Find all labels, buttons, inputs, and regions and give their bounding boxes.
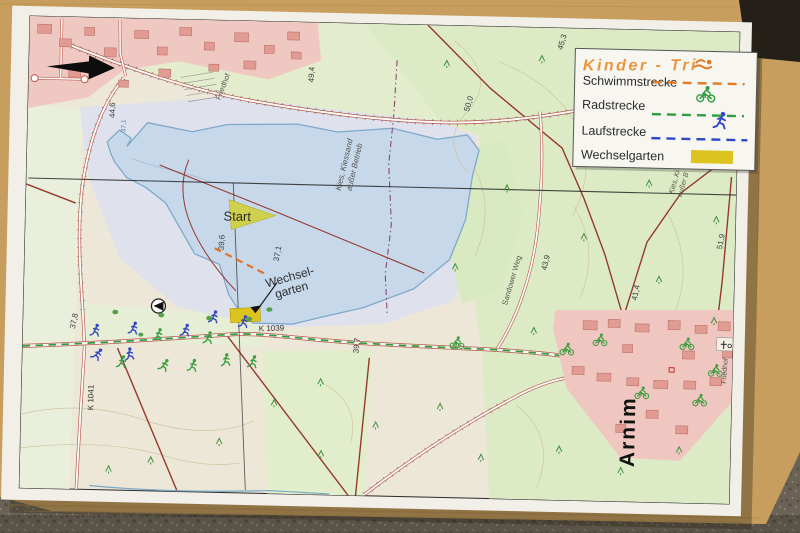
svg-text:37,1: 37,1 <box>120 119 127 132</box>
legend-swim-label: Schwimmstrecke <box>583 74 678 90</box>
town-name-label: Arnim <box>616 396 641 467</box>
road-label-k1039: K 1039 <box>259 324 285 334</box>
svg-text:44,6: 44,6 <box>108 102 117 118</box>
legend-transition-swatch <box>691 150 733 164</box>
turn-indicator-icon <box>151 299 165 313</box>
fields-south-center <box>259 347 372 495</box>
elevation-49-4: 49,4 <box>307 66 317 83</box>
photo-of-course-map: Start Wechsel- garten Arnim K 1039 K 104… <box>0 0 800 533</box>
svg-text:K 1041: K 1041 <box>86 384 96 410</box>
elevation-39-7: 39,7 <box>351 337 361 354</box>
legend-transition-label: Wechselgarten <box>581 148 664 164</box>
map-photo-canvas: Start Wechsel- garten Arnim K 1039 K 104… <box>0 0 800 533</box>
legend-title: Kinder - Tri <box>583 57 698 74</box>
svg-text:39,7: 39,7 <box>351 337 361 354</box>
elevation-37-1-nw: 37,1 <box>120 119 127 132</box>
legend-bike-label: Radstrecke <box>582 98 646 113</box>
svg-text:Arnim: Arnim <box>616 396 641 467</box>
road-label-k1041: K 1041 <box>86 384 96 410</box>
cul-de-sac <box>31 75 38 82</box>
elevation-44-6: 44,6 <box>108 102 117 118</box>
start-label: Start <box>223 208 251 224</box>
svg-text:49,4: 49,4 <box>307 66 317 83</box>
elevation-39-6: 39,6 <box>217 234 227 251</box>
cul-de-sac <box>81 76 88 83</box>
map-poster: Start Wechsel- garten Arnim K 1039 K 104… <box>1 6 763 530</box>
svg-text:39,6: 39,6 <box>217 234 227 251</box>
legend-box: Kinder - Tri Schwimmstrecke Radstrecke L… <box>573 48 761 173</box>
legend-run-label: Laufstrecke <box>581 124 646 139</box>
cemetery-arnim-symbol <box>717 338 733 351</box>
